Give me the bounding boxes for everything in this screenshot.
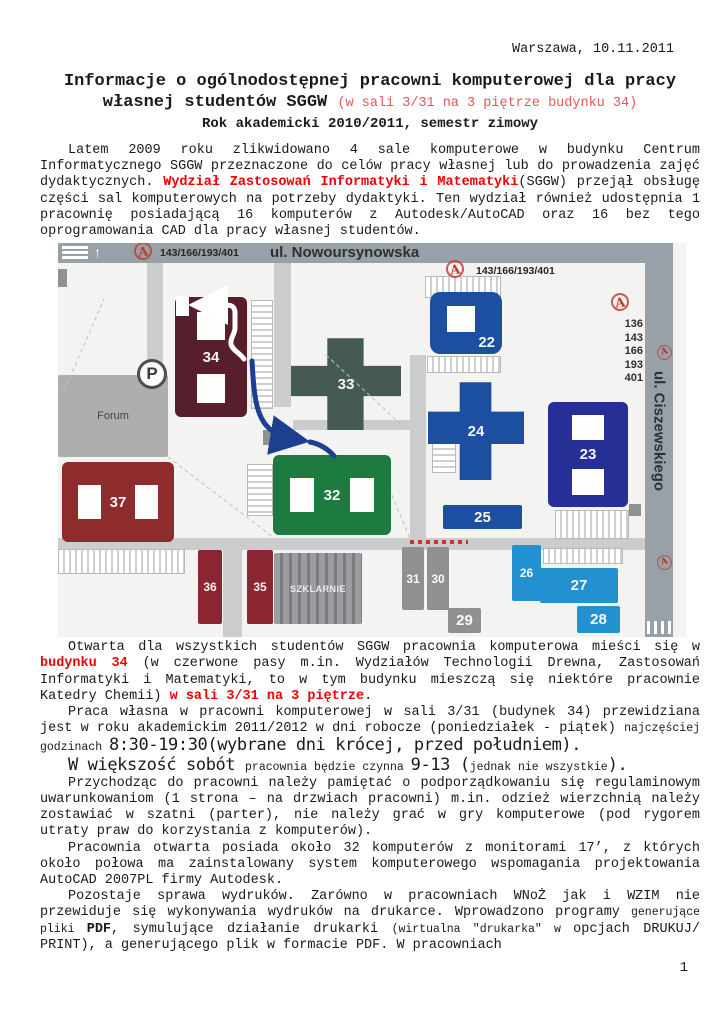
building-34: 34 (175, 297, 247, 417)
text-segment: . (364, 689, 372, 704)
crosswalk (647, 621, 671, 634)
bus-line-number: 401 (603, 372, 643, 386)
building-32: 32 (273, 455, 391, 535)
building-label: 33 (291, 338, 401, 430)
text-segment: ). (608, 755, 628, 775)
paragraph-saturdays: W większość sobót pracownia będzie czynn… (40, 757, 700, 776)
bus-mark-icon: A (655, 554, 673, 572)
text-segment: PDF (87, 922, 111, 937)
bus-line-number: 143 (603, 332, 643, 346)
bus-stop-right: A 136143166193401 (611, 293, 629, 312)
building-26: 26 (512, 545, 541, 601)
bus-lines-stack: 136143166193401 (603, 318, 643, 386)
legend-icon (62, 246, 88, 261)
text-segment: Pozostaje sprawa wydruków. Zarówno w pra… (40, 889, 700, 920)
building-35: 35 (247, 550, 273, 624)
bus-mark-icon: A (655, 344, 673, 362)
building-label: 25 (443, 505, 522, 529)
text-segment: jednak nie wszystkie (470, 761, 608, 774)
bus-stop-icon: A (610, 292, 630, 312)
building-label: 29 (448, 608, 481, 633)
text-segment: 8:30-19:30(wybrane dni krócej, przed poł… (109, 735, 581, 755)
building-label: 35 (247, 550, 273, 624)
street-nowoursynowska-road: ↑ A 143/166/193/401 ul. Nowoursynowska (58, 243, 673, 263)
text-segment: , symulujące działanie drukarki (111, 922, 392, 937)
street-name-right: ul. Ciszewskiego (651, 371, 668, 491)
title-line2-red: (w sali 3/31 na 3 piętrze budynku 34) (337, 96, 637, 111)
text-segment: pracownia będzie czynna (245, 761, 411, 774)
building-label: 37 (62, 462, 174, 542)
bus-line-number: 166 (603, 345, 643, 359)
document-title: Informacje o ogólnodostępnej pracowni ko… (40, 71, 700, 114)
bus-stop-icon: A (445, 259, 465, 279)
text-segment: Wydział Zastosowań Informatyki i Matemat… (163, 175, 518, 190)
building-label: 34 (175, 297, 247, 417)
document-page: Warszawa, 10.11.2011 Informacje o ogólno… (0, 0, 724, 1024)
building-24: 24 (428, 382, 524, 480)
paragraph-rules: Przychodząc do pracowni należy pamiętać … (40, 776, 700, 841)
paragraph-hours: Praca własna w pracowni komputerowej w s… (40, 705, 700, 757)
text-segment: 9-13 ( (411, 755, 470, 775)
building-31: 31 (402, 547, 424, 610)
text-segment: Przychodząc do pracowni należy pamiętać … (40, 776, 700, 840)
text-segment: (wirtualna "drukarka" w (392, 923, 574, 936)
building-36: 36 (198, 550, 222, 624)
building-29: 29 (448, 608, 481, 633)
page-number: 1 (40, 960, 700, 976)
bus-line-number: 193 (603, 359, 643, 373)
building-30: 30 (427, 547, 449, 610)
building-27: 27 (540, 568, 618, 603)
bus-line-number: 136 (603, 318, 643, 332)
building-label: 22 (430, 292, 502, 354)
building-25: 25 (443, 505, 522, 529)
building-label: 23 (548, 402, 628, 507)
date-line: Warszawa, 10.11.2011 (40, 42, 700, 57)
building-label: 30 (427, 547, 449, 610)
building-label: SZKLARNIE (274, 553, 362, 624)
building-szklarnie: SZKLARNIE (274, 553, 362, 624)
building-label: 28 (577, 606, 620, 633)
bus-stop-icon: A (133, 243, 153, 261)
paragraph-intro: Latem 2009 roku zlikwidowano 4 sale komp… (40, 143, 700, 240)
building-label: 32 (273, 455, 391, 535)
bus-lines-label: 143/166/193/401 (476, 265, 555, 277)
building-label: 31 (402, 547, 424, 610)
text-segment: Pracownia otwarta posiada około 32 kompu… (40, 841, 700, 888)
paragraph-location: Otwarta dla wszystkich studentów SGGW pr… (40, 640, 700, 705)
building-label: 24 (428, 382, 524, 480)
bus-stop-mid: A 143/166/193/401 (446, 260, 464, 279)
building-37: 37 (62, 462, 174, 542)
building-label: 26 (512, 545, 541, 601)
building-28: 28 (577, 606, 620, 633)
paragraph-printing: Pozostaje sprawa wydruków. Zarówno w pra… (40, 889, 700, 954)
title-line2: własnej studentów SGGW (103, 93, 338, 112)
text-segment: budynku 34 (40, 656, 128, 671)
text-segment: W większość sobót (68, 755, 245, 775)
street-name-top: ul. Nowoursynowska (270, 244, 419, 261)
map-buildings: 34233732332422252627283130293635SZKLARNI… (58, 243, 686, 637)
building-label: 36 (198, 550, 222, 624)
paragraph-computers: Pracownia otwarta posiada około 32 kompu… (40, 841, 700, 890)
building-33: 33 (291, 338, 401, 430)
text-segment: Otwarta dla wszystkich studentów SGGW pr… (68, 640, 700, 655)
document-subtitle: Rok akademicki 2010/2011, semestr zimowy (40, 116, 700, 132)
north-arrow-icon: ↑ (94, 244, 101, 260)
street-ciszewskiego-road: ul. Ciszewskiego A A (645, 263, 673, 637)
building-22: 22 (430, 292, 502, 354)
text-segment: w sali 3/31 na 3 piętrze (170, 689, 364, 704)
building-23: 23 (548, 402, 628, 507)
building-label: 27 (540, 568, 618, 603)
bus-lines-top: 143/166/193/401 (160, 247, 239, 259)
document-content: Warszawa, 10.11.2011 Informacje o ogólno… (40, 42, 700, 976)
text-segment: Praca własna w pracowni komputerowej w s… (40, 705, 700, 736)
title-line1: Informacje o ogólnodostępnej pracowni ko… (64, 72, 676, 91)
campus-map: 34233732332422252627283130293635SZKLARNI… (58, 243, 686, 637)
